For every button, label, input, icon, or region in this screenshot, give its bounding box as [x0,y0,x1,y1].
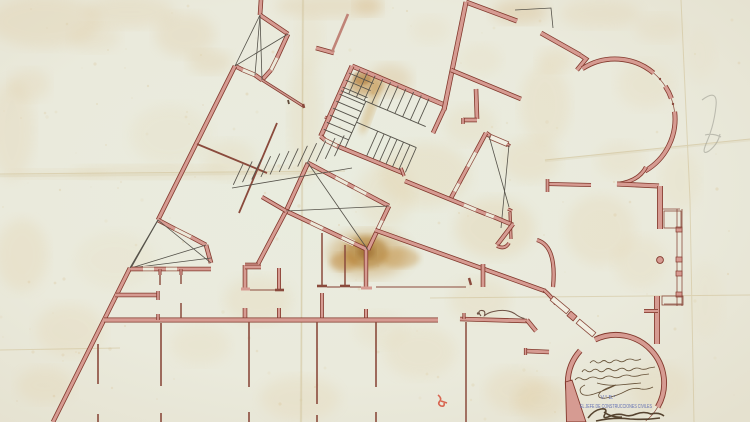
svg-text:V.° B.°: V.° B.° [601,395,616,401]
svg-text:EL JEFE DE CONSTRUCCIONES CIVI: EL JEFE DE CONSTRUCCIONES CIVILES [580,404,652,410]
